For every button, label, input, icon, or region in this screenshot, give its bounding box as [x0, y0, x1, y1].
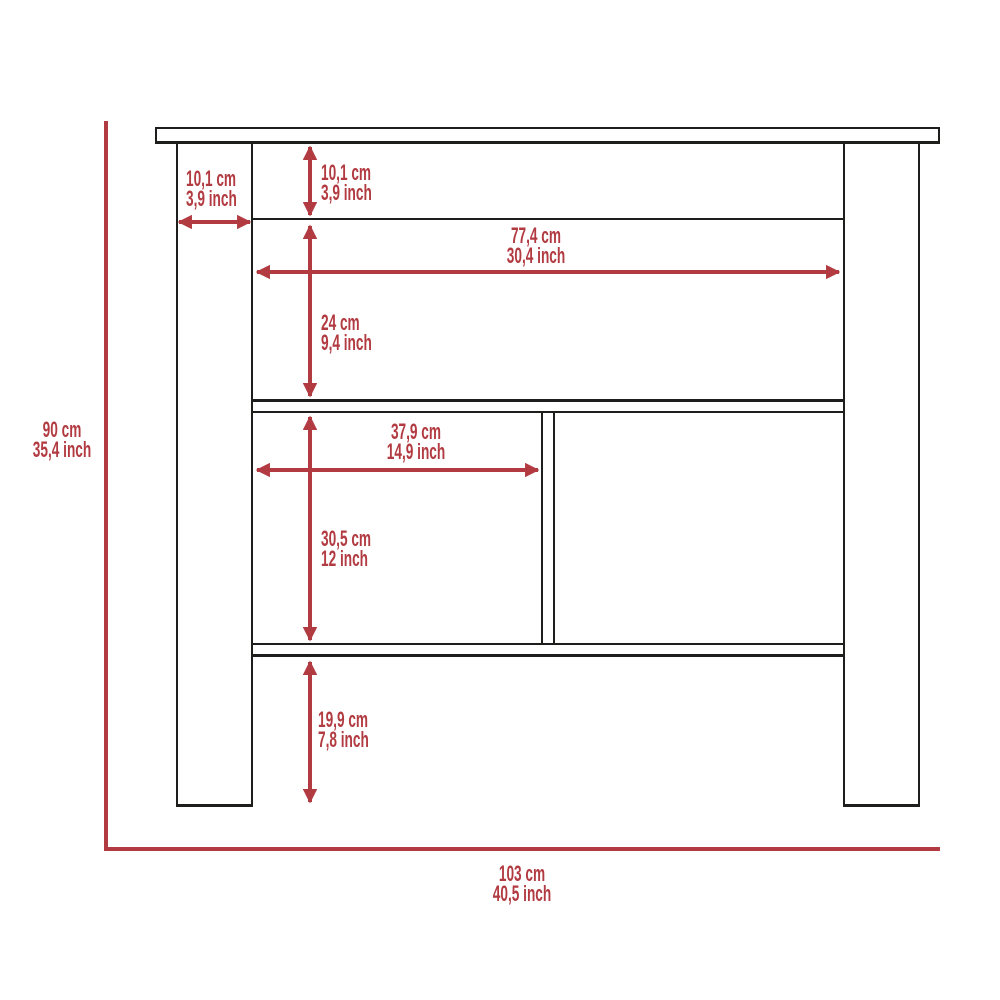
overall-width-label: 103 cm 40,5 inch — [454, 864, 590, 904]
top-rail-height-label: 10,1 cm 3,9 inch — [321, 163, 372, 203]
leg-width-inch: 3,9 inch — [186, 189, 237, 209]
left-cubby-width-inch: 14,9 inch — [348, 442, 484, 462]
leg-width-label: 10,1 cm 3,9 inch — [186, 169, 237, 209]
overall-width-inch: 40,5 inch — [454, 884, 590, 904]
upper-shelf-height-inch: 9,4 inch — [321, 333, 372, 353]
bottom-clearance-label: 19,9 cm 7,8 inch — [318, 710, 369, 750]
dimension-overlay — [0, 0, 1000, 1000]
overall-height-inch: 35,4 inch — [0, 440, 130, 460]
dimension-diagram: 10,1 cm 3,9 inch 10,1 cm 3,9 inch 77,4 c… — [0, 0, 1000, 1000]
left-cubby-width-label: 37,9 cm 14,9 inch — [348, 422, 484, 462]
lower-cubby-height-label: 30,5 cm 12 inch — [321, 529, 371, 569]
top-rail-height-inch: 3,9 inch — [321, 183, 372, 203]
upper-shelf-height-label: 24 cm 9,4 inch — [321, 313, 372, 353]
inner-width-inch: 30,4 inch — [468, 246, 604, 266]
bottom-clearance-inch: 7,8 inch — [318, 730, 369, 750]
overall-height-label: 90 cm 35,4 inch — [0, 420, 130, 460]
lower-cubby-height-inch: 12 inch — [321, 549, 371, 569]
inner-width-label: 77,4 cm 30,4 inch — [468, 226, 604, 266]
